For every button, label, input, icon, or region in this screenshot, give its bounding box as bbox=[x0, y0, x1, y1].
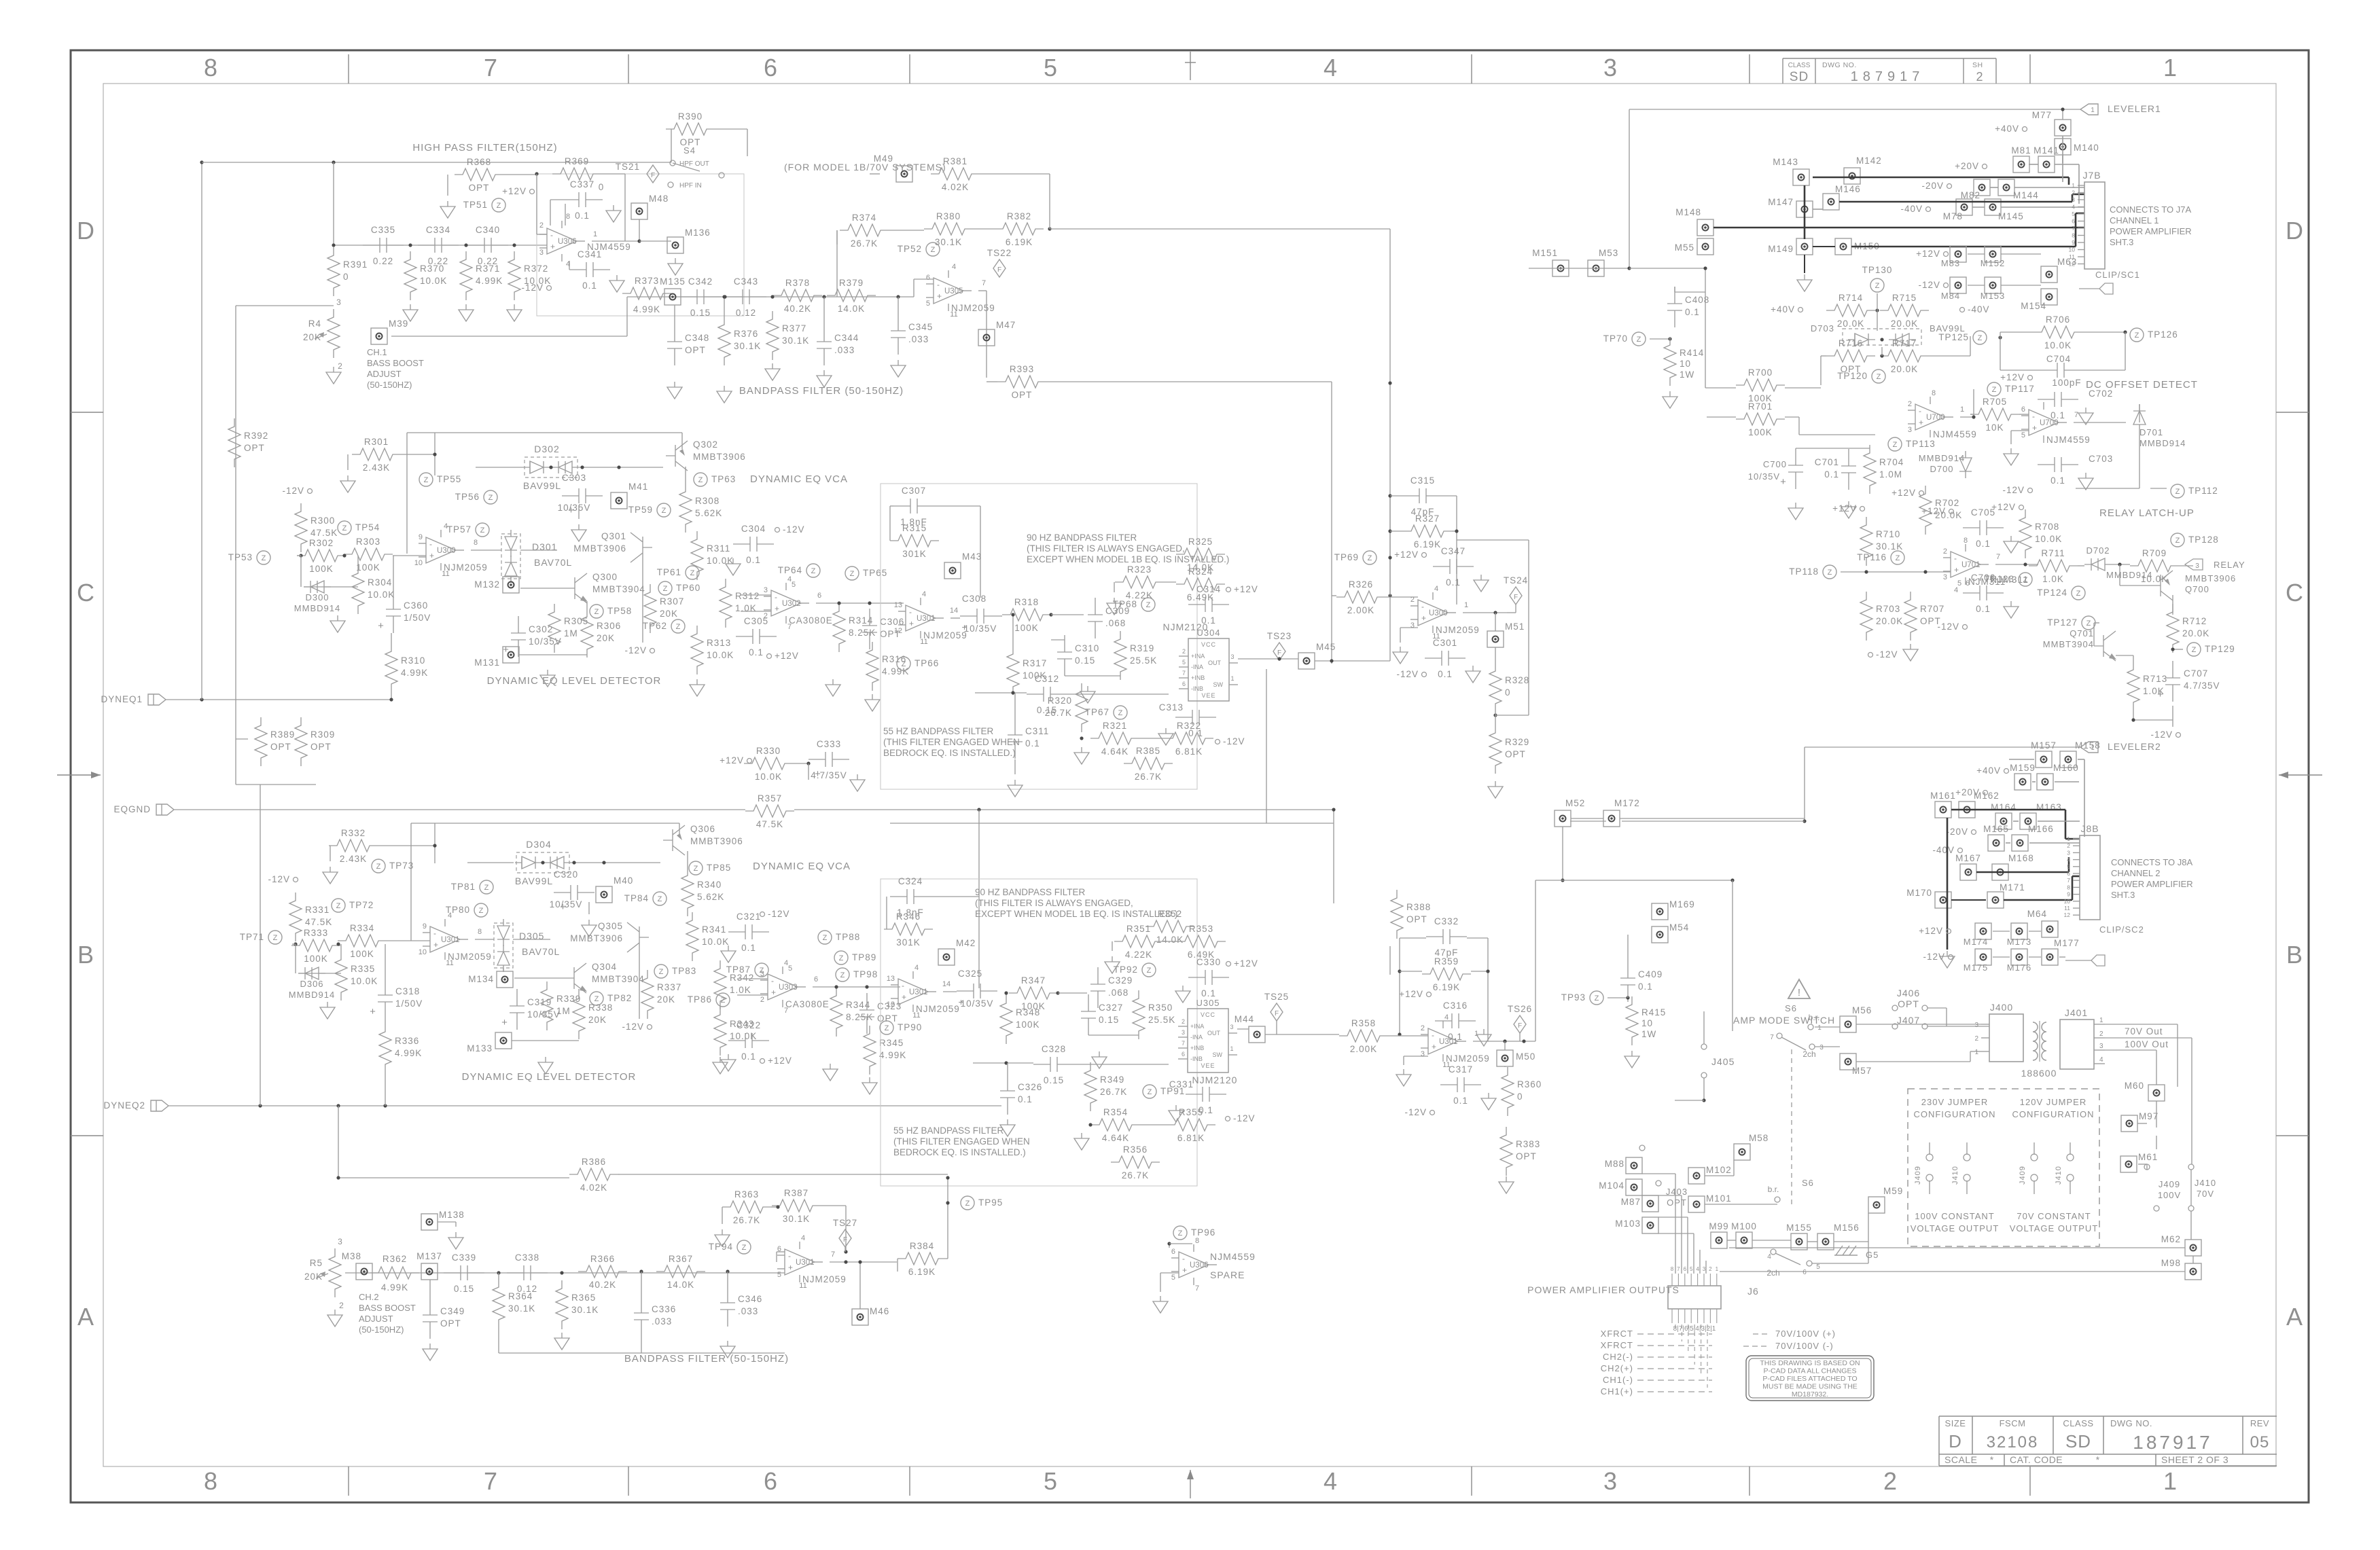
svg-text:-12V: -12V bbox=[1876, 649, 1898, 660]
svg-text:1W: 1W bbox=[1680, 370, 1694, 380]
svg-text:M40: M40 bbox=[614, 876, 633, 886]
svg-text:+12V: +12V bbox=[1891, 488, 1916, 498]
svg-text:TP52: TP52 bbox=[898, 244, 922, 254]
svg-text:32108: 32108 bbox=[1987, 1433, 2039, 1452]
svg-text:14: 14 bbox=[942, 980, 951, 988]
svg-text:VOLTAGE OUTPUT: VOLTAGE OUTPUT bbox=[1911, 1223, 2000, 1233]
svg-text:TP82: TP82 bbox=[607, 993, 632, 1003]
svg-text:(THIS FILTER ENGAGED WHEN: (THIS FILTER ENGAGED WHEN bbox=[893, 1136, 1030, 1147]
svg-text:0.15: 0.15 bbox=[690, 308, 711, 318]
svg-text:MMBD914: MMBD914 bbox=[2139, 438, 2186, 448]
svg-text:2: 2 bbox=[1976, 70, 1983, 84]
svg-text:Z: Z bbox=[1178, 1229, 1183, 1238]
svg-text:Z: Z bbox=[1828, 569, 1832, 577]
svg-text:R5: R5 bbox=[310, 1258, 323, 1268]
svg-text:5: 5 bbox=[1171, 1274, 1175, 1282]
svg-text:10: 10 bbox=[2064, 898, 2071, 905]
svg-text:6: 6 bbox=[814, 975, 818, 984]
svg-text:+12V: +12V bbox=[502, 186, 527, 196]
svg-text:R384: R384 bbox=[910, 1241, 934, 1251]
svg-text:NJM2059: NJM2059 bbox=[916, 1004, 960, 1014]
svg-text:Z: Z bbox=[1147, 967, 1152, 975]
svg-text:25.5K: 25.5K bbox=[1130, 655, 1157, 666]
svg-text:U300: U300 bbox=[437, 547, 456, 555]
svg-text:26.7K: 26.7K bbox=[1135, 772, 1162, 782]
svg-text:0.1: 0.1 bbox=[749, 647, 764, 657]
svg-text:TP112: TP112 bbox=[2188, 486, 2218, 496]
svg-text:M162: M162 bbox=[1974, 791, 2000, 801]
svg-text:R304: R304 bbox=[368, 577, 392, 588]
svg-text:6: 6 bbox=[2072, 218, 2075, 225]
svg-text:7: 7 bbox=[784, 1007, 788, 1015]
svg-text:R360: R360 bbox=[1517, 1079, 1542, 1089]
svg-text:R302: R302 bbox=[309, 538, 334, 548]
svg-text:Z: Z bbox=[2175, 537, 2180, 545]
svg-text:M132: M132 bbox=[474, 579, 500, 590]
svg-text:10.0K: 10.0K bbox=[707, 556, 734, 566]
svg-text:R325: R325 bbox=[1188, 537, 1213, 547]
svg-text:R321: R321 bbox=[1103, 721, 1127, 731]
svg-text:C306: C306 bbox=[880, 617, 904, 627]
svg-text:+12V: +12V bbox=[1832, 503, 1857, 513]
svg-text:VCC: VCC bbox=[1201, 641, 1216, 648]
svg-text:DYNAMIC EQ LEVEL DETECTOR: DYNAMIC EQ LEVEL DETECTOR bbox=[487, 675, 662, 687]
svg-text:10.0K: 10.0K bbox=[730, 1031, 757, 1041]
svg-text:M163: M163 bbox=[2036, 802, 2062, 812]
svg-text:J410: J410 bbox=[2055, 1166, 2063, 1185]
svg-text:7: 7 bbox=[2067, 877, 2070, 884]
svg-text:C: C bbox=[2286, 579, 2303, 607]
svg-text:20.0K: 20.0K bbox=[1837, 319, 1864, 329]
svg-text:1: 1 bbox=[593, 230, 597, 238]
svg-text:TP128: TP128 bbox=[2188, 535, 2219, 545]
svg-text:(50-150HZ): (50-150HZ) bbox=[367, 380, 412, 390]
svg-text:Z: Z bbox=[1896, 554, 1900, 562]
svg-text:3: 3 bbox=[1410, 621, 1415, 630]
svg-text:C317: C317 bbox=[1449, 1064, 1473, 1075]
svg-text:120V JUMPER: 120V JUMPER bbox=[2020, 1097, 2086, 1107]
svg-text:C341: C341 bbox=[578, 249, 602, 259]
svg-text:Z: Z bbox=[1368, 554, 1372, 562]
svg-text:M160: M160 bbox=[2053, 763, 2079, 773]
svg-text:M154: M154 bbox=[2021, 301, 2046, 311]
svg-text:VEE: VEE bbox=[1201, 692, 1215, 699]
svg-text:+12V: +12V bbox=[1919, 926, 1943, 936]
svg-text:TP94: TP94 bbox=[709, 1242, 733, 1252]
svg-text:J6: J6 bbox=[1747, 1286, 1759, 1297]
svg-text:R385: R385 bbox=[1136, 746, 1160, 756]
svg-text:R356: R356 bbox=[1123, 1145, 1148, 1155]
svg-text:C301: C301 bbox=[1433, 638, 1457, 648]
svg-text:0.15: 0.15 bbox=[454, 1284, 474, 1294]
svg-text:FSCM: FSCM bbox=[2000, 1418, 2026, 1428]
svg-text:C326: C326 bbox=[1018, 1082, 1042, 1092]
svg-text:10.0K: 10.0K bbox=[420, 276, 447, 286]
svg-text:+: + bbox=[378, 620, 385, 632]
svg-text:1: 1 bbox=[1974, 1049, 1978, 1056]
svg-text:R329: R329 bbox=[1505, 737, 1529, 747]
svg-text:TP68: TP68 bbox=[1113, 599, 1137, 609]
svg-text:C704: C704 bbox=[2046, 354, 2071, 364]
svg-text:R362: R362 bbox=[383, 1254, 407, 1264]
svg-text:R332: R332 bbox=[341, 828, 366, 838]
svg-text:C321: C321 bbox=[736, 912, 761, 922]
svg-text:R364: R364 bbox=[508, 1291, 533, 1301]
svg-text:TP57: TP57 bbox=[447, 524, 472, 535]
svg-text:C338: C338 bbox=[515, 1252, 539, 1263]
svg-text:R306: R306 bbox=[597, 621, 621, 631]
svg-text:2: 2 bbox=[2072, 190, 2075, 196]
svg-text:C702: C702 bbox=[2089, 389, 2113, 399]
svg-text:MMBT3906: MMBT3906 bbox=[693, 452, 746, 462]
svg-text:C307: C307 bbox=[902, 486, 926, 496]
svg-text:8: 8 bbox=[1964, 537, 1968, 545]
svg-text:C330: C330 bbox=[1196, 957, 1221, 967]
svg-text:1/50V: 1/50V bbox=[395, 998, 423, 1009]
svg-text:U301: U301 bbox=[796, 1259, 815, 1267]
svg-text:2: 2 bbox=[2099, 1030, 2103, 1038]
svg-text:3: 3 bbox=[338, 1237, 343, 1246]
svg-text:+12V: +12V bbox=[1394, 549, 1419, 560]
svg-text:8: 8 bbox=[204, 54, 217, 82]
svg-text:2: 2 bbox=[339, 1301, 344, 1310]
svg-text:TP64: TP64 bbox=[778, 565, 802, 575]
svg-text:+: + bbox=[771, 988, 776, 997]
svg-text:.068: .068 bbox=[1108, 988, 1129, 998]
svg-text:6.19K: 6.19K bbox=[1414, 539, 1441, 549]
svg-text:TP124: TP124 bbox=[2037, 588, 2067, 598]
svg-text:-40V: -40V bbox=[1968, 304, 1990, 314]
svg-text:R391: R391 bbox=[343, 259, 368, 270]
svg-text:Z: Z bbox=[659, 968, 664, 976]
svg-text:-: - bbox=[788, 1251, 791, 1261]
svg-text:TS25: TS25 bbox=[1264, 992, 1289, 1002]
svg-text:1.0K: 1.0K bbox=[2042, 574, 2064, 584]
svg-text:R320: R320 bbox=[1048, 696, 1072, 706]
svg-text:D304: D304 bbox=[526, 839, 551, 850]
svg-text:Z: Z bbox=[2192, 646, 2197, 654]
svg-text:C703: C703 bbox=[2089, 454, 2113, 464]
svg-text:3: 3 bbox=[539, 249, 544, 257]
svg-text:R715: R715 bbox=[1892, 293, 1917, 303]
svg-text:2: 2 bbox=[760, 996, 764, 1004]
svg-text:C706: C706 bbox=[1971, 573, 1995, 583]
svg-text:U305: U305 bbox=[1196, 998, 1220, 1008]
svg-text:Z: Z bbox=[902, 660, 906, 668]
svg-text:5: 5 bbox=[2072, 211, 2075, 217]
svg-text:0.1: 0.1 bbox=[575, 211, 590, 221]
svg-text:(50-150HZ): (50-150HZ) bbox=[359, 1324, 404, 1335]
svg-text:OPT: OPT bbox=[469, 183, 490, 193]
svg-text:M104: M104 bbox=[1599, 1180, 1624, 1191]
svg-text:0.1: 0.1 bbox=[2050, 475, 2065, 486]
svg-text:+40V: +40V bbox=[1995, 124, 2019, 134]
svg-text:R700: R700 bbox=[1748, 367, 1773, 378]
svg-text:Q700: Q700 bbox=[2185, 584, 2209, 594]
svg-text:R363: R363 bbox=[734, 1189, 759, 1200]
svg-text:b.r.: b.r. bbox=[1768, 1185, 1779, 1194]
svg-text:M44: M44 bbox=[1235, 1014, 1254, 1024]
svg-text:U305: U305 bbox=[944, 287, 963, 295]
svg-text:0.15: 0.15 bbox=[1099, 1015, 1119, 1025]
svg-text:NJM4559: NJM4559 bbox=[1933, 429, 1977, 439]
svg-text:0.1: 0.1 bbox=[1824, 469, 1839, 480]
svg-text:2: 2 bbox=[1182, 648, 1186, 655]
svg-text:187917: 187917 bbox=[1851, 69, 1925, 84]
svg-text:R312: R312 bbox=[735, 591, 760, 601]
svg-text:-: - bbox=[1954, 554, 1957, 563]
svg-text:Z: Z bbox=[2135, 331, 2139, 340]
svg-text:C340: C340 bbox=[476, 225, 500, 235]
svg-text:55 HZ BANDPASS FILTER: 55 HZ BANDPASS FILTER bbox=[893, 1125, 1004, 1136]
svg-text:C311: C311 bbox=[1025, 726, 1049, 736]
svg-text:+: + bbox=[902, 992, 906, 1002]
svg-text:EQGND: EQGND bbox=[113, 804, 151, 814]
svg-text:4: 4 bbox=[2067, 857, 2070, 863]
svg-text:7: 7 bbox=[1195, 1284, 1199, 1293]
svg-text:C328: C328 bbox=[1042, 1044, 1066, 1054]
svg-text:D702: D702 bbox=[2086, 545, 2110, 556]
svg-text:Z: Z bbox=[721, 996, 726, 1005]
svg-text:BAV99L: BAV99L bbox=[523, 480, 561, 491]
svg-text:M147: M147 bbox=[1768, 197, 1794, 207]
svg-text:1: 1 bbox=[2091, 107, 2095, 114]
svg-text:P-CAD FILES ATTACHED TO: P-CAD FILES ATTACHED TO bbox=[1762, 1375, 1857, 1383]
svg-text:-12V: -12V bbox=[2150, 729, 2173, 740]
svg-text:CH2(-): CH2(-) bbox=[1603, 1352, 1633, 1362]
svg-text:M174: M174 bbox=[1964, 937, 1989, 947]
svg-text:TP125: TP125 bbox=[1938, 332, 1969, 342]
svg-text:Z: Z bbox=[2023, 576, 2028, 584]
svg-text:M145: M145 bbox=[1998, 211, 2024, 221]
svg-text:8: 8 bbox=[2072, 232, 2075, 239]
svg-text:C314: C314 bbox=[1196, 584, 1221, 594]
svg-text:Z: Z bbox=[1893, 441, 1898, 449]
svg-text:+: + bbox=[550, 242, 555, 251]
svg-text:30.1K: 30.1K bbox=[734, 341, 761, 351]
svg-text:C320: C320 bbox=[554, 869, 578, 880]
svg-text:SH: SH bbox=[1972, 61, 1983, 69]
svg-text:4: 4 bbox=[1444, 1013, 1449, 1022]
svg-text:R355: R355 bbox=[1179, 1107, 1203, 1117]
svg-text:2: 2 bbox=[1883, 1467, 1897, 1495]
svg-text:Z: Z bbox=[262, 554, 266, 562]
svg-text:26.7K: 26.7K bbox=[851, 238, 878, 249]
svg-text:MD187932.: MD187932. bbox=[1792, 1390, 1828, 1399]
svg-text:R378: R378 bbox=[785, 278, 810, 288]
svg-text:R373: R373 bbox=[635, 276, 659, 286]
svg-text:DYNAMIC EQ VCA: DYNAMIC EQ VCA bbox=[750, 473, 848, 485]
svg-text:+: + bbox=[1182, 1265, 1187, 1275]
svg-text:J409: J409 bbox=[1914, 1166, 1922, 1185]
svg-text:M134: M134 bbox=[468, 974, 494, 984]
svg-text:R381: R381 bbox=[943, 156, 967, 166]
svg-text:M155: M155 bbox=[1786, 1223, 1812, 1233]
svg-text:OPT: OPT bbox=[1667, 1197, 1687, 1208]
svg-text:RELAY LATCH-UP: RELAY LATCH-UP bbox=[2099, 507, 2195, 519]
svg-text:20K: 20K bbox=[588, 1015, 607, 1025]
svg-text:30.1K: 30.1K bbox=[1876, 541, 1903, 552]
svg-text:C342: C342 bbox=[688, 276, 713, 287]
svg-text:2: 2 bbox=[338, 361, 343, 371]
svg-text:OPT: OPT bbox=[1898, 998, 1919, 1009]
svg-text:Z: Z bbox=[760, 967, 764, 975]
svg-text:R705: R705 bbox=[1983, 397, 2007, 407]
svg-text:C325: C325 bbox=[958, 969, 982, 979]
svg-text:6: 6 bbox=[817, 592, 821, 600]
svg-text:R710: R710 bbox=[1876, 529, 1900, 539]
svg-text:11: 11 bbox=[950, 310, 957, 319]
svg-text:+INB: +INB bbox=[1191, 674, 1205, 681]
svg-text:R315: R315 bbox=[902, 523, 927, 533]
svg-text:20.0K: 20.0K bbox=[2182, 628, 2209, 638]
svg-text:2: 2 bbox=[1943, 547, 1947, 556]
svg-text:BASS BOOST: BASS BOOST bbox=[367, 358, 424, 368]
svg-text:POWER AMPLIFIER OUTPUTS: POWER AMPLIFIER OUTPUTS bbox=[1527, 1284, 1680, 1295]
svg-text:230V JUMPER: 230V JUMPER bbox=[1921, 1097, 1988, 1107]
svg-text:M57: M57 bbox=[1852, 1066, 1872, 1076]
svg-text:R369: R369 bbox=[565, 156, 589, 166]
svg-text:R374: R374 bbox=[852, 213, 876, 223]
svg-text:1.0M: 1.0M bbox=[1879, 469, 1902, 480]
svg-text:.033: .033 bbox=[738, 1306, 758, 1316]
svg-text:+: + bbox=[909, 619, 914, 628]
svg-text:TP98: TP98 bbox=[853, 969, 878, 979]
svg-text:ADJUST: ADJUST bbox=[359, 1314, 393, 1324]
svg-text:+: + bbox=[1919, 418, 1923, 427]
svg-text:100K: 100K bbox=[350, 949, 374, 959]
svg-text:M61: M61 bbox=[2138, 1152, 2158, 1162]
svg-text:26.7K: 26.7K bbox=[1045, 708, 1072, 718]
svg-text:R300: R300 bbox=[310, 516, 335, 526]
svg-text:5: 5 bbox=[1182, 659, 1186, 666]
svg-text:2: 2 bbox=[1421, 1024, 1425, 1032]
svg-text:Z: Z bbox=[690, 569, 695, 577]
svg-text:M175: M175 bbox=[1964, 962, 1989, 973]
svg-text:2.43K: 2.43K bbox=[340, 854, 367, 864]
svg-text:+12V: +12V bbox=[775, 651, 799, 661]
svg-text:R371: R371 bbox=[476, 264, 500, 274]
svg-text:10/35V: 10/35V bbox=[1748, 471, 1780, 482]
svg-text:100V CONSTANT: 100V CONSTANT bbox=[1915, 1211, 1995, 1221]
svg-text:1: 1 bbox=[1464, 601, 1468, 609]
svg-text:M100: M100 bbox=[1731, 1221, 1757, 1231]
svg-text:+: + bbox=[1954, 565, 1959, 575]
svg-text:+: + bbox=[775, 604, 779, 613]
svg-text:2: 2 bbox=[1974, 1035, 1978, 1043]
svg-text:NJM4559: NJM4559 bbox=[1210, 1251, 1256, 1262]
svg-text:7: 7 bbox=[484, 54, 497, 82]
svg-text:M49: M49 bbox=[874, 154, 893, 164]
svg-text:+: + bbox=[1432, 1042, 1436, 1051]
svg-text:1: 1 bbox=[2072, 182, 2075, 189]
svg-text:BAV70L: BAV70L bbox=[534, 557, 572, 568]
svg-text:3: 3 bbox=[1182, 1029, 1185, 1036]
svg-text:-: - bbox=[1421, 602, 1424, 611]
svg-text:C348: C348 bbox=[685, 333, 709, 343]
svg-text:C333: C333 bbox=[817, 739, 841, 749]
svg-text:7: 7 bbox=[787, 623, 792, 631]
svg-text:0.1: 0.1 bbox=[1025, 738, 1040, 749]
svg-text:MMBT3906: MMBT3906 bbox=[2185, 573, 2236, 583]
svg-text:4: 4 bbox=[2099, 1056, 2103, 1064]
svg-text:F: F bbox=[1275, 1010, 1279, 1017]
svg-text:20K: 20K bbox=[657, 994, 675, 1005]
svg-text:70V: 70V bbox=[2197, 1189, 2214, 1199]
svg-text:0.1: 0.1 bbox=[1453, 1096, 1468, 1106]
svg-text:Z: Z bbox=[663, 585, 668, 593]
svg-text:.033: .033 bbox=[908, 334, 929, 344]
svg-text:R334: R334 bbox=[350, 923, 374, 933]
svg-text:C327: C327 bbox=[1099, 1003, 1123, 1013]
svg-text:Z: Z bbox=[823, 934, 828, 942]
svg-text:TP89: TP89 bbox=[852, 952, 876, 962]
svg-text:-12V: -12V bbox=[1918, 280, 1940, 290]
svg-text:R333: R333 bbox=[304, 928, 328, 938]
svg-text:9: 9 bbox=[423, 922, 427, 931]
svg-text:13: 13 bbox=[887, 975, 895, 983]
svg-text:R357: R357 bbox=[758, 793, 782, 804]
svg-text:12: 12 bbox=[894, 627, 902, 635]
svg-text:M63: M63 bbox=[2057, 257, 2077, 267]
svg-text:3: 3 bbox=[2067, 849, 2070, 856]
svg-text:OPT: OPT bbox=[244, 443, 265, 453]
svg-text:10: 10 bbox=[414, 559, 423, 567]
svg-text:6.19K: 6.19K bbox=[1433, 982, 1460, 992]
svg-text:U301: U301 bbox=[909, 988, 928, 996]
svg-text:M170: M170 bbox=[1906, 888, 1932, 898]
svg-text:10.0K: 10.0K bbox=[707, 650, 734, 660]
svg-text:-12V: -12V bbox=[2002, 485, 2025, 495]
svg-text:1: 1 bbox=[2099, 1017, 2103, 1024]
svg-text:-12V: -12V bbox=[783, 524, 805, 535]
svg-text:M138: M138 bbox=[439, 1210, 465, 1220]
svg-text:TS21: TS21 bbox=[616, 162, 640, 172]
svg-text:0.1: 0.1 bbox=[741, 1051, 756, 1062]
svg-text:SHT.3: SHT.3 bbox=[2111, 890, 2135, 900]
svg-text:TP130: TP130 bbox=[1862, 265, 1893, 275]
svg-text:R372: R372 bbox=[524, 264, 548, 274]
svg-text:7: 7 bbox=[1770, 1034, 1774, 1041]
svg-text:R382: R382 bbox=[1007, 211, 1031, 221]
svg-text:M42: M42 bbox=[956, 938, 976, 948]
svg-text:U303: U303 bbox=[779, 984, 798, 992]
svg-text:+: + bbox=[1421, 613, 1426, 623]
svg-text:TP73: TP73 bbox=[389, 861, 414, 871]
svg-text:D300: D300 bbox=[305, 592, 329, 602]
svg-text:C316: C316 bbox=[1443, 1001, 1468, 1011]
svg-text:+40V: +40V bbox=[1771, 304, 1795, 314]
svg-text:R309: R309 bbox=[310, 729, 335, 740]
svg-text:M39: M39 bbox=[389, 319, 408, 329]
svg-text:BANDPASS FILTER (50-150HZ): BANDPASS FILTER (50-150HZ) bbox=[624, 1353, 789, 1365]
svg-text:1.0K: 1.0K bbox=[735, 603, 757, 613]
svg-text:TP67: TP67 bbox=[1085, 707, 1109, 717]
svg-text:3: 3 bbox=[1943, 573, 1947, 581]
svg-text:1: 1 bbox=[1230, 1045, 1233, 1052]
svg-text:7: 7 bbox=[1996, 553, 2000, 561]
svg-text:TP86: TP86 bbox=[688, 994, 712, 1005]
svg-text:+: + bbox=[2032, 423, 2037, 433]
svg-text:Z: Z bbox=[479, 907, 484, 915]
svg-text:5: 5 bbox=[926, 300, 930, 308]
svg-text:20K: 20K bbox=[303, 332, 321, 342]
svg-text:0.1: 0.1 bbox=[582, 281, 597, 291]
svg-text:M177: M177 bbox=[2054, 938, 2080, 948]
svg-text:30.1K: 30.1K bbox=[571, 1305, 599, 1315]
svg-text:SD: SD bbox=[1790, 70, 1809, 84]
svg-text:10.0K: 10.0K bbox=[2044, 340, 2072, 350]
